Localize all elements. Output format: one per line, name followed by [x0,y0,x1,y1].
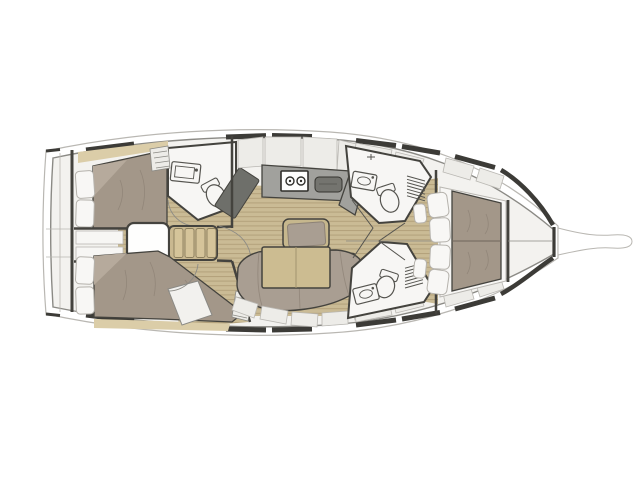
washbasin [351,171,377,191]
stairs [169,226,217,260]
pillow [426,192,449,219]
pillow [75,257,94,285]
bow-sprit-outline [558,228,632,255]
saloon-table [262,247,330,288]
louver-locker [150,146,170,171]
pillow [413,203,427,223]
pillow [76,287,95,315]
pillow [426,269,449,296]
pillow [75,170,95,198]
two-burner-stove [281,171,308,191]
washbasin [170,161,201,183]
pillow [429,244,450,269]
pillow [413,258,427,278]
floor-plan-canvas [0,0,640,480]
berth-locker [76,231,123,244]
yacht-floor-plan [0,0,640,480]
galley-sink [315,177,342,192]
pillow [76,200,95,228]
bench-cushion [287,222,326,248]
pillow [429,217,450,242]
